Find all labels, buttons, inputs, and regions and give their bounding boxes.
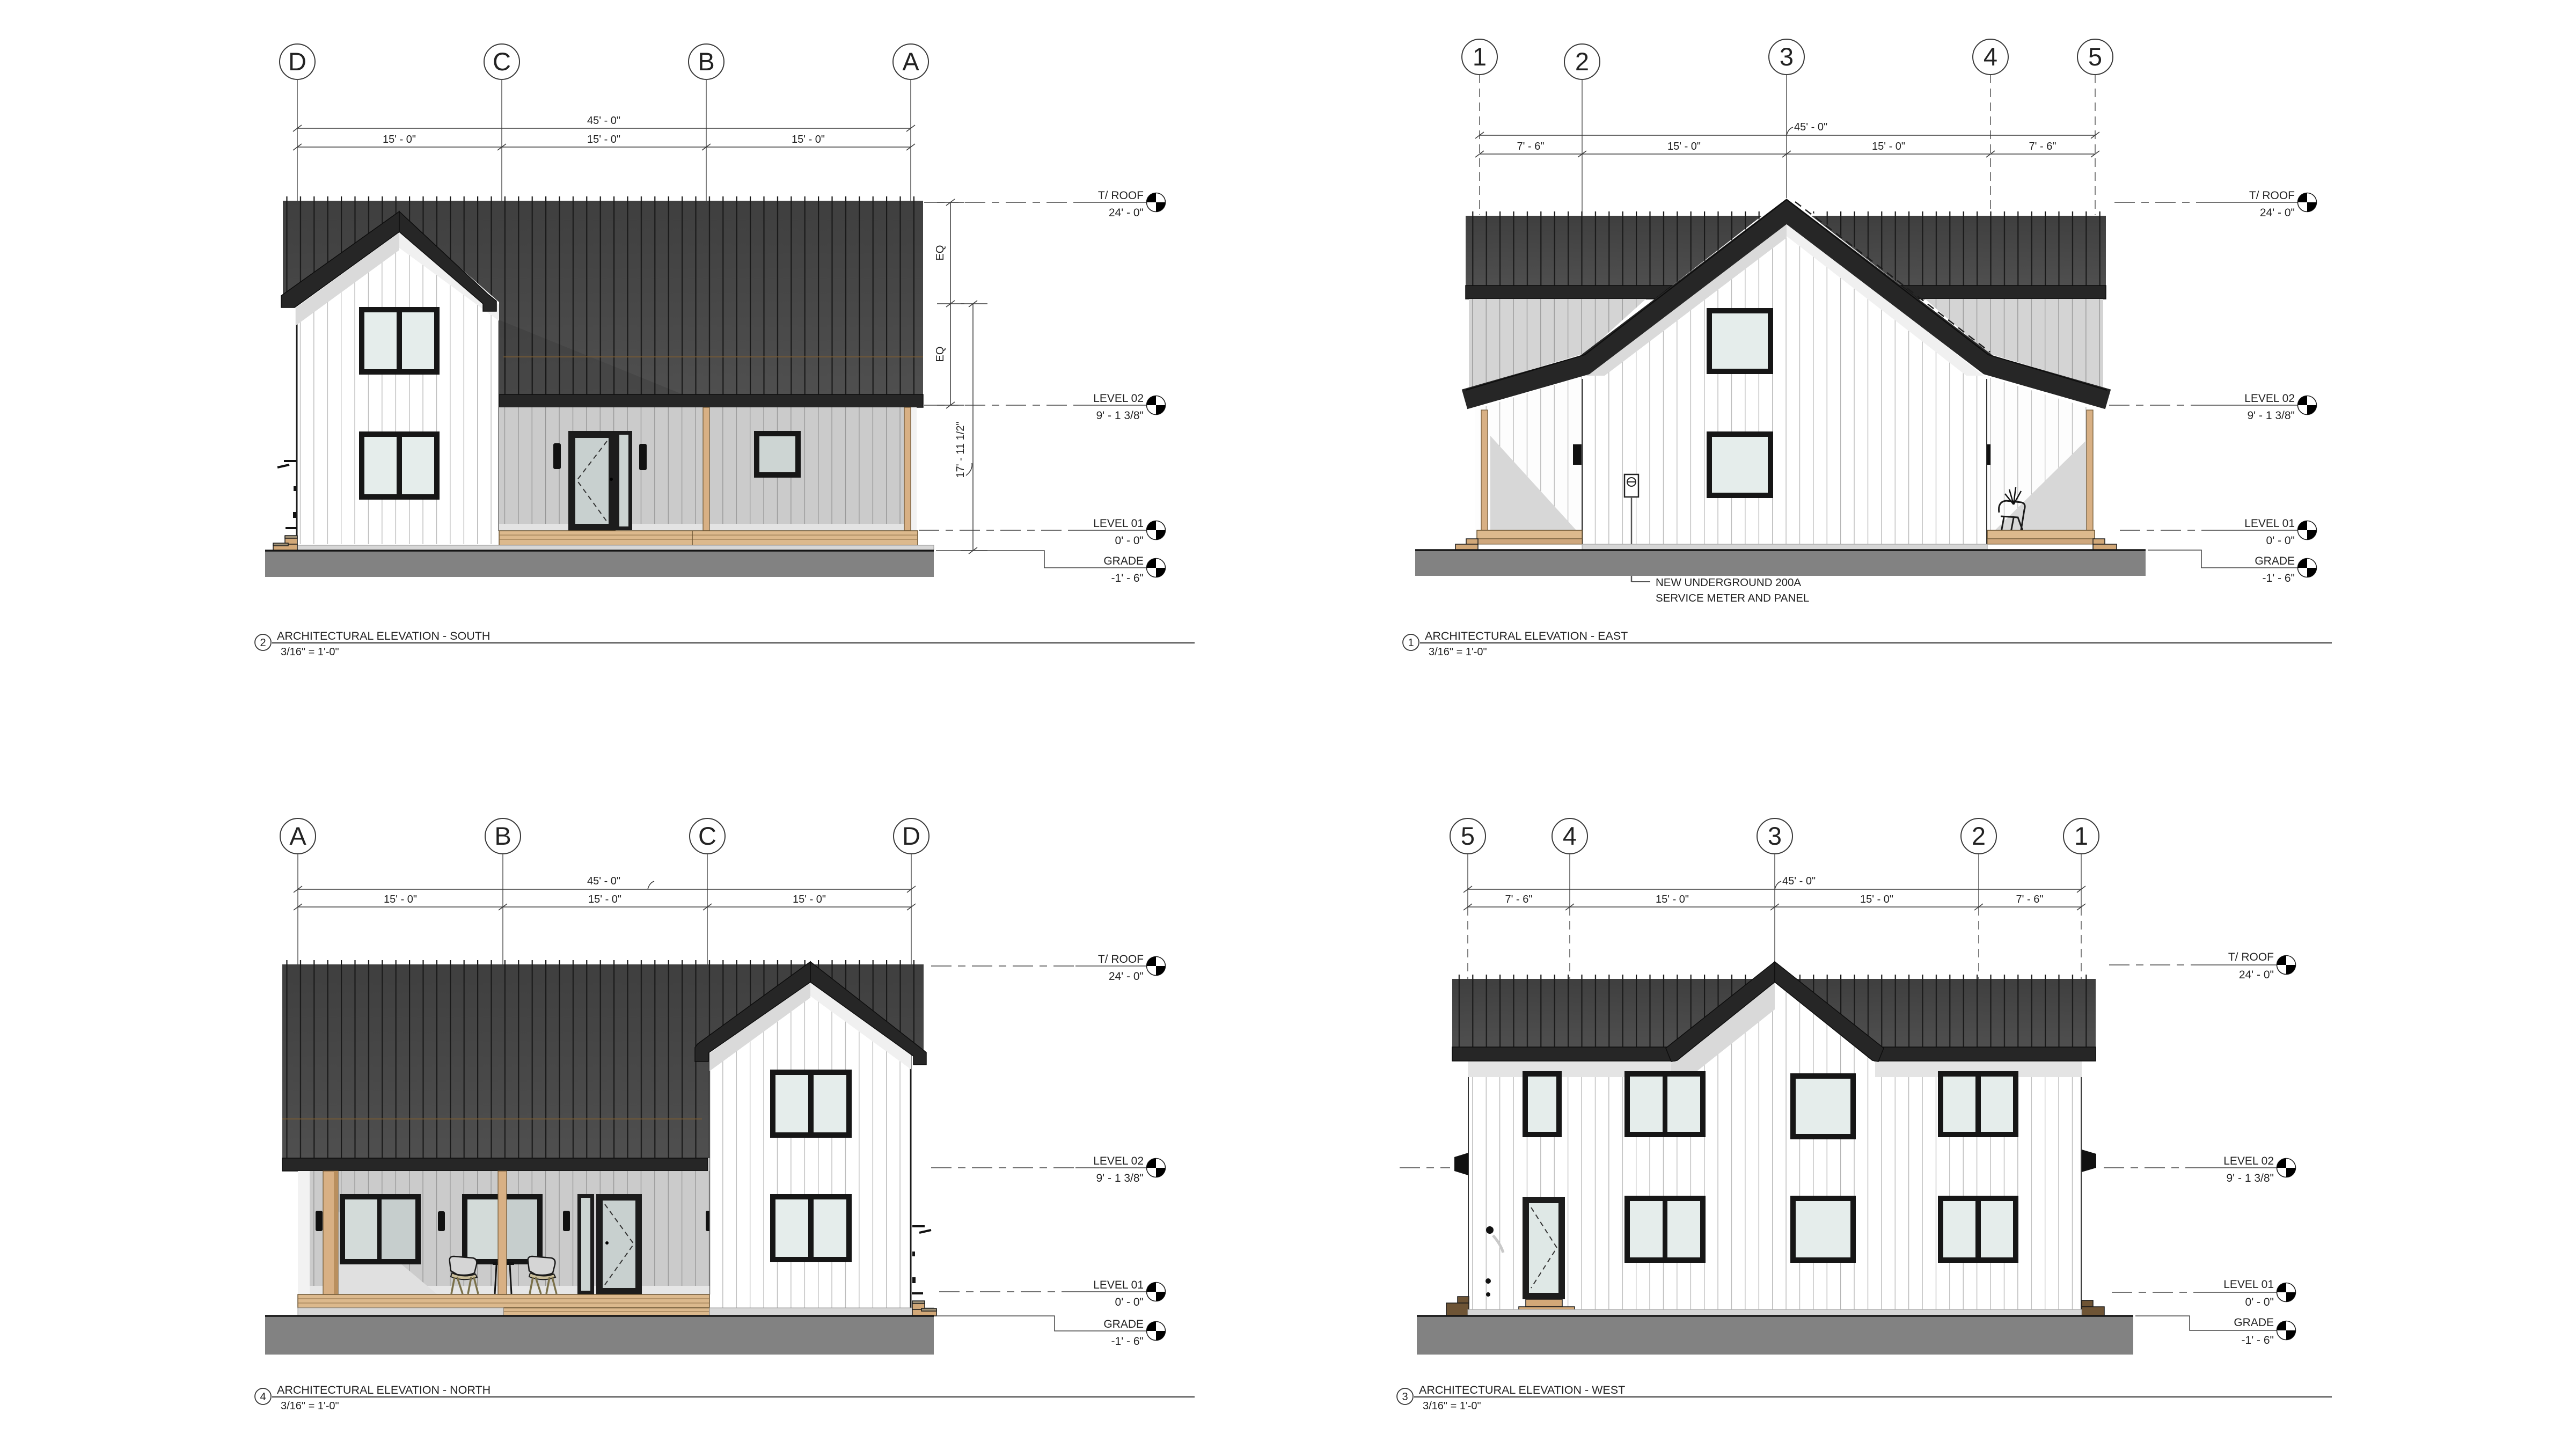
svg-text:GRADE: GRADE: [1103, 555, 1144, 567]
svg-text:45' - 0": 45' - 0": [587, 875, 620, 887]
svg-text:LEVEL 01: LEVEL 01: [2244, 517, 2295, 530]
svg-text:GRADE: GRADE: [1103, 1318, 1144, 1330]
svg-text:GRADE: GRADE: [2234, 1316, 2274, 1329]
svg-text:ARCHITECTURAL ELEVATION - NORT: ARCHITECTURAL ELEVATION - NORTH: [277, 1384, 491, 1396]
svg-text:D: D: [902, 822, 920, 850]
svg-text:-1' - 6": -1' - 6": [1111, 1335, 1144, 1348]
svg-text:9' - 1 3/8": 9' - 1 3/8": [1096, 409, 1144, 422]
svg-text:GRADE: GRADE: [2255, 555, 2295, 567]
svg-text:0' - 0": 0' - 0": [1115, 535, 1144, 547]
svg-text:7' - 6": 7' - 6": [1505, 894, 1533, 905]
svg-text:24' - 0": 24' - 0": [2260, 207, 2295, 219]
svg-text:3: 3: [1780, 42, 1794, 71]
svg-text:0' - 0": 0' - 0": [2266, 535, 2295, 547]
svg-text:2: 2: [1575, 47, 1589, 76]
svg-text:15' - 0": 15' - 0": [792, 134, 825, 145]
svg-text:NEW UNDERGROUND 200A: NEW UNDERGROUND 200A: [1656, 576, 1801, 589]
svg-text:B: B: [494, 822, 511, 850]
svg-text:-1' - 6": -1' - 6": [2263, 572, 2295, 584]
svg-text:2: 2: [260, 637, 266, 649]
svg-text:7' - 6": 7' - 6": [2029, 141, 2057, 152]
svg-text:LEVEL 02: LEVEL 02: [1093, 392, 1144, 405]
svg-text:-1' - 6": -1' - 6": [1111, 572, 1144, 584]
svg-text:LEVEL 02: LEVEL 02: [2223, 1155, 2274, 1167]
svg-text:3: 3: [1768, 822, 1782, 850]
svg-text:0' - 0": 0' - 0": [2245, 1296, 2274, 1308]
svg-text:15' - 0": 15' - 0": [588, 894, 621, 905]
svg-text:9' - 1 3/8": 9' - 1 3/8": [2247, 409, 2295, 422]
svg-text:15' - 0": 15' - 0": [384, 894, 417, 905]
svg-text:17' - 11 1/2": 17' - 11 1/2": [955, 421, 967, 478]
svg-text:15' - 0": 15' - 0": [793, 894, 826, 905]
svg-text:15' - 0": 15' - 0": [587, 134, 620, 145]
svg-text:9' - 1 3/8": 9' - 1 3/8": [2226, 1172, 2274, 1184]
svg-text:5: 5: [2088, 42, 2102, 71]
svg-text:ARCHITECTURAL ELEVATION - SOUT: ARCHITECTURAL ELEVATION - SOUTH: [277, 630, 490, 642]
svg-text:ARCHITECTURAL ELEVATION - WEST: ARCHITECTURAL ELEVATION - WEST: [1419, 1384, 1625, 1396]
svg-text:2: 2: [1972, 822, 1986, 850]
svg-text:3/16" = 1'-0": 3/16" = 1'-0": [281, 646, 339, 658]
svg-text:EQ: EQ: [934, 347, 946, 362]
svg-text:A: A: [902, 47, 919, 76]
svg-text:15' - 0": 15' - 0": [1872, 141, 1905, 152]
svg-text:1: 1: [1408, 637, 1414, 649]
svg-text:T/ ROOF: T/ ROOF: [1098, 189, 1144, 202]
svg-text:45' - 0": 45' - 0": [1782, 875, 1816, 887]
svg-text:1: 1: [1473, 42, 1487, 71]
svg-text:4: 4: [1563, 822, 1577, 850]
svg-text:-1' - 6": -1' - 6": [2242, 1334, 2274, 1346]
svg-text:7' - 6": 7' - 6": [1517, 141, 1545, 152]
svg-text:0' - 0": 0' - 0": [1115, 1296, 1144, 1308]
svg-text:LEVEL 01: LEVEL 01: [2223, 1278, 2274, 1291]
svg-text:9' - 1 3/8": 9' - 1 3/8": [1096, 1172, 1144, 1184]
svg-text:T/ ROOF: T/ ROOF: [1098, 953, 1144, 965]
svg-text:LEVEL 02: LEVEL 02: [2244, 392, 2295, 405]
svg-text:5: 5: [1461, 822, 1475, 850]
svg-text:LEVEL 01: LEVEL 01: [1093, 1279, 1144, 1291]
svg-text:4: 4: [1984, 42, 1997, 71]
svg-text:45' - 0": 45' - 0": [587, 115, 620, 127]
svg-text:3/16" = 1'-0": 3/16" = 1'-0": [281, 1400, 339, 1412]
svg-text:24' - 0": 24' - 0": [1109, 207, 1144, 219]
svg-text:24' - 0": 24' - 0": [2239, 969, 2274, 981]
svg-text:15' - 0": 15' - 0": [1656, 894, 1689, 905]
svg-text:3/16" = 1'-0": 3/16" = 1'-0": [1423, 1400, 1481, 1412]
svg-text:4: 4: [260, 1391, 266, 1403]
svg-text:ARCHITECTURAL ELEVATION - EAST: ARCHITECTURAL ELEVATION - EAST: [1425, 630, 1628, 642]
svg-text:SERVICE METER AND PANEL: SERVICE METER AND PANEL: [1656, 592, 1809, 604]
svg-text:15' - 0": 15' - 0": [1667, 141, 1701, 152]
svg-text:3/16" = 1'-0": 3/16" = 1'-0": [1429, 646, 1487, 658]
svg-text:45' - 0": 45' - 0": [1794, 121, 1827, 133]
svg-text:T/ ROOF: T/ ROOF: [2249, 189, 2295, 202]
svg-text:1: 1: [2074, 822, 2088, 850]
svg-text:LEVEL 02: LEVEL 02: [1093, 1155, 1144, 1167]
svg-text:A: A: [289, 822, 306, 850]
svg-text:C: C: [493, 47, 511, 76]
svg-text:EQ: EQ: [934, 245, 946, 261]
svg-text:15' - 0": 15' - 0": [383, 134, 416, 145]
svg-text:D: D: [288, 47, 306, 76]
svg-text:7' - 6": 7' - 6": [2016, 894, 2044, 905]
svg-text:LEVEL 01: LEVEL 01: [1093, 517, 1144, 530]
svg-text:3: 3: [1402, 1391, 1408, 1403]
svg-text:15' - 0": 15' - 0": [1860, 894, 1893, 905]
svg-text:24' - 0": 24' - 0": [1109, 970, 1144, 983]
svg-text:B: B: [698, 47, 714, 76]
svg-text:C: C: [698, 822, 716, 850]
svg-text:T/ ROOF: T/ ROOF: [2228, 951, 2274, 963]
